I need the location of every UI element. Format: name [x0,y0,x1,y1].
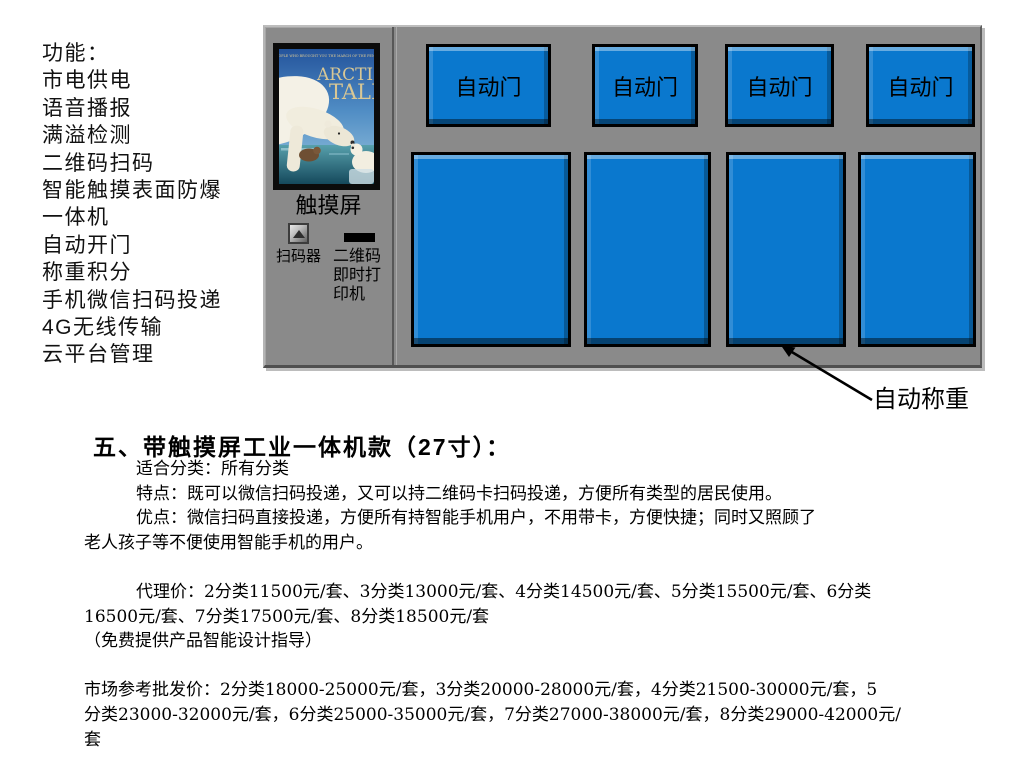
market-price-line-2: 分类23000-32000元/套，6分类25000-35000元/套，7分类27… [84,703,974,728]
machine-bin-area: 自动门 自动门 自动门 自动门 [396,27,980,365]
free-design-line: （免费提供产品智能设计指导） [84,629,974,654]
feature-item: 自动开门 [42,232,222,259]
deposit-bin-3 [726,152,846,347]
auto-door-button-4: 自动门 [866,44,975,127]
scanner-label: 扫码器 [276,248,321,264]
qr-printer-icon [344,233,375,242]
feature-item: 二维码扫码 [42,150,222,177]
description-block: 适合分类：所有分类 特点：既可以微信扫码投递，又可以持二维码卡扫码投递，方便所有… [84,457,974,752]
agent-price-line-2: 16500元/套、7分类17500元/套、8分类18500元/套 [84,605,974,630]
poster-tagline: THE PEOPLE WHO BROUGHT YOU THE MARCH OF … [279,54,374,58]
deposit-bin-4 [858,152,976,347]
machine-diagram: THE PEOPLE WHO BROUGHT YOU THE MARCH OF … [263,25,982,368]
qr-printer-label: 二维码 即时打 印机 [333,246,381,303]
auto-weigh-label: 自动称重 [873,386,969,412]
feature-item: 手机微信扫码投递 [42,287,222,314]
feature-list-title: 功能： [42,40,222,67]
arctic-tale-poster-image: THE PEOPLE WHO BROUGHT YOU THE MARCH OF … [279,49,374,184]
slide-canvas: 功能： 市电供电 语音播报 满溢检测 二维码扫码 智能触摸表面防爆 一体机 自动… [0,0,1032,773]
feature-item: 云平台管理 [42,341,222,368]
feature-item: 称重积分 [42,259,222,286]
advantage-line-2: 老人孩子等不便使用智能手机的用户。 [84,531,974,556]
touch-screen-label: 触摸屏 [265,195,392,219]
agent-price-line-1: 代理价：2分类11500元/套、3分类13000元/套、4分类14500元/套、… [84,580,974,605]
auto-door-button-1: 自动门 [426,44,551,127]
scanner-icon [288,223,309,244]
feature-item: 4G无线传输 [42,314,222,341]
market-price-line-1: 市场参考批发价：2分类18000-25000元/套，3分类20000-28000… [84,678,974,703]
feature-item: 智能触摸表面防爆 [42,177,222,204]
deposit-bin-1 [411,152,571,347]
feature-item: 一体机 [42,204,222,231]
feature-item: 语音播报 [42,95,222,122]
feature-item: 市电供电 [42,67,222,94]
feature-item: 满溢检测 [42,122,222,149]
auto-door-button-3: 自动门 [725,44,834,127]
deposit-bin-2 [584,152,711,347]
poster-title-tale: TALE [329,80,374,104]
market-price-line-3: 套 [84,728,974,753]
machine-control-column: THE PEOPLE WHO BROUGHT YOU THE MARCH OF … [265,27,394,365]
advantage-line-1: 优点：微信扫码直接投递，方便所有持智能手机用户，不用带卡，方便快捷；同时又照顾了 [84,506,974,531]
feature-line: 特点：既可以微信扫码投递，又可以持二维码卡扫码投递，方便所有类型的居民使用。 [84,482,974,507]
touch-screen-display: THE PEOPLE WHO BROUGHT YOU THE MARCH OF … [273,43,380,190]
fit-category-line: 适合分类：所有分类 [84,457,974,482]
feature-list: 功能： 市电供电 语音播报 满溢检测 二维码扫码 智能触摸表面防爆 一体机 自动… [42,40,222,369]
ice-shape [349,169,374,184]
auto-door-button-2: 自动门 [592,44,698,127]
